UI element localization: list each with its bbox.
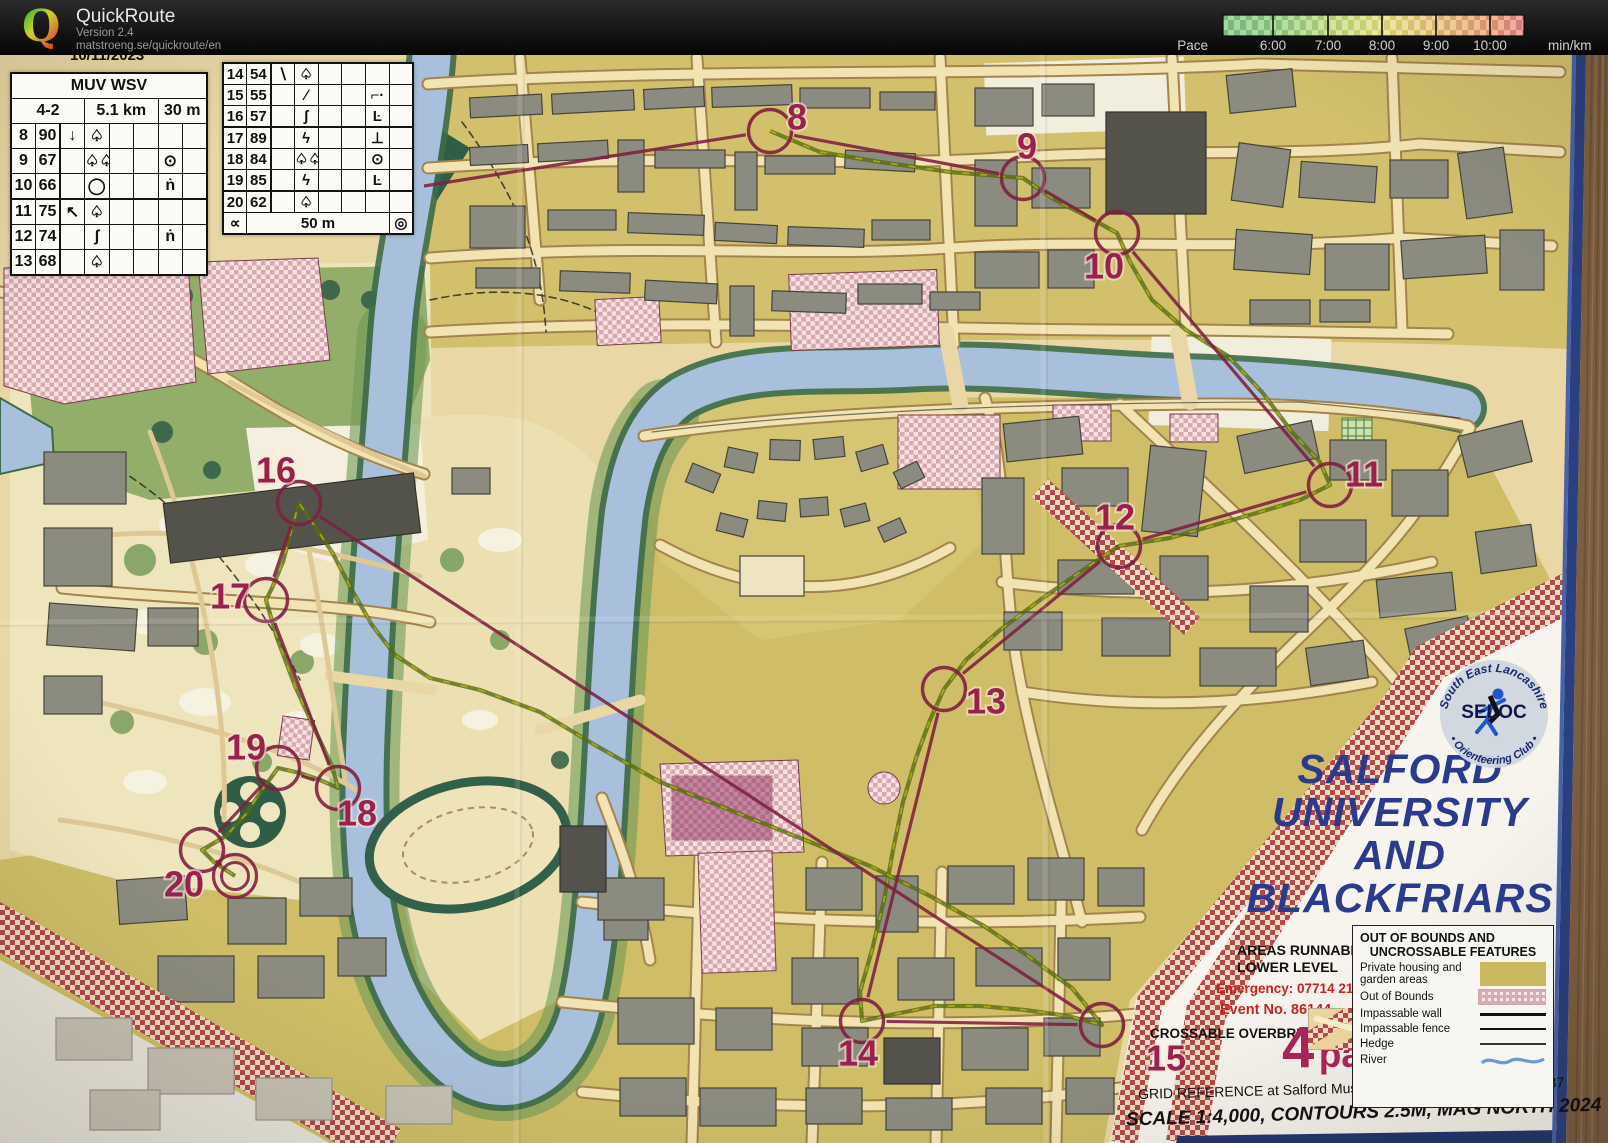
- oob-legend: OUT OF BOUNDS AND UNCROSSABLE FEATURES P…: [1352, 925, 1554, 1108]
- description-symbol: [318, 127, 342, 149]
- control-number-12: 12: [1095, 497, 1135, 538]
- description-symbol: [183, 199, 208, 225]
- description-symbol: [271, 85, 295, 106]
- control-no: 15: [223, 85, 247, 106]
- description-symbol: [342, 106, 366, 128]
- description-symbol: [271, 106, 295, 128]
- description-symbol: ṅ: [158, 225, 183, 250]
- description-symbol: [389, 85, 413, 106]
- description-symbol: ϟ: [294, 170, 318, 192]
- description-symbol: [60, 225, 85, 250]
- description-symbol: ⊙: [158, 149, 183, 174]
- legend-item: Hedge: [1360, 1038, 1546, 1050]
- description-symbol: ♤: [85, 124, 110, 149]
- control-code: 62: [247, 191, 271, 213]
- control-no: 18: [223, 149, 247, 170]
- control-code: 54: [247, 63, 271, 85]
- sheet-class: MUV WSV: [11, 73, 207, 99]
- description-symbol: [134, 225, 159, 250]
- control-no: 14: [223, 63, 247, 85]
- pace-tick-label: 8:00: [1369, 38, 1395, 53]
- control-description-sheet: 10/11/2023 MUV WSV 4-2 5.1 km 30 m 890↓♤…: [10, 55, 414, 269]
- pace-tick-label: 6:00: [1260, 38, 1286, 53]
- description-symbol: [134, 250, 159, 276]
- pace-legend: 6:007:008:009:0010:00 Pace min/km: [1150, 0, 1608, 55]
- description-symbol: [183, 250, 208, 276]
- pace-label: Pace: [1177, 38, 1208, 53]
- description-symbol: [389, 106, 413, 128]
- description-symbol: [134, 174, 159, 200]
- description-symbol: [158, 250, 183, 276]
- control-number-9: 9: [1017, 126, 1037, 167]
- description-symbol: [183, 225, 208, 250]
- sheet-left-table: MUV WSV 4-2 5.1 km 30 m 890↓♤967♤♤⊙1066◯…: [10, 72, 208, 276]
- title-bar: Q QuickRoute Version 2.4 matstroeng.se/q…: [0, 0, 1608, 55]
- sheet-length: 5.1 km: [85, 99, 159, 124]
- control-code: 67: [36, 149, 61, 174]
- description-symbol: [389, 127, 413, 149]
- legend-swatch-hedge: [1480, 1043, 1546, 1045]
- control-no: 16: [223, 106, 247, 128]
- control-code: 74: [36, 225, 61, 250]
- description-symbol: [271, 127, 295, 149]
- finish-funnel-icon: ∝: [223, 213, 247, 235]
- description-symbol: ♤: [294, 191, 318, 213]
- legend-swatch-oob: [1478, 989, 1546, 1005]
- control-number-18: 18: [337, 793, 377, 834]
- description-symbol: [342, 149, 366, 170]
- description-symbol: [318, 149, 342, 170]
- description-symbol: [271, 191, 295, 213]
- description-symbol: [158, 124, 183, 149]
- description-symbol: ∖: [271, 63, 295, 85]
- control-number-15: 15: [1146, 1038, 1186, 1079]
- description-symbol: [389, 149, 413, 170]
- control-code: 90: [36, 124, 61, 149]
- control-code: 89: [247, 127, 271, 149]
- description-symbol: [183, 124, 208, 149]
- control-code: 68: [36, 250, 61, 276]
- description-symbol: [342, 127, 366, 149]
- description-symbol: ʃ: [294, 106, 318, 128]
- description-symbol: [60, 250, 85, 276]
- control-no: 13: [11, 250, 36, 276]
- quickroute-window: { "header": { "logo_letter": "Q", "app_n…: [0, 0, 1608, 1143]
- description-symbol: ♤: [294, 63, 318, 85]
- description-symbol: [389, 170, 413, 192]
- description-symbol: [318, 170, 342, 192]
- description-symbol: ⊙: [366, 149, 390, 170]
- description-symbol: [60, 174, 85, 200]
- description-symbol: [109, 149, 134, 174]
- description-symbol: [109, 174, 134, 200]
- control-no: 8: [11, 124, 36, 149]
- description-symbol: ∕: [294, 85, 318, 106]
- pace-tick-label: 9:00: [1423, 38, 1449, 53]
- sheet-right-table: 1454∖♤1555∕⌐·1657ʃĿ1789ϟ⊥1884♤♤⊙1985ϟĿ20…: [222, 62, 414, 235]
- sheet-final-leg: 50 m: [247, 213, 390, 235]
- pace-tick-label: 10:00: [1473, 38, 1507, 53]
- description-symbol: ♤: [85, 250, 110, 276]
- description-symbol: [134, 124, 159, 149]
- description-symbol: ◯: [85, 174, 110, 200]
- description-symbol: [342, 85, 366, 106]
- control-no: 19: [223, 170, 247, 192]
- app-title: QuickRoute: [76, 6, 175, 28]
- sheet-climb: 30 m: [158, 99, 207, 124]
- description-symbol: [183, 174, 208, 200]
- description-symbol: [318, 85, 342, 106]
- control-no: 11: [11, 199, 36, 225]
- control-number-8: 8: [787, 97, 807, 138]
- description-symbol: [389, 191, 413, 213]
- legend-item: Private housing and garden areas: [1360, 962, 1546, 986]
- description-symbol: [318, 191, 342, 213]
- description-symbol: ⌐·: [366, 85, 390, 106]
- control-no: 17: [223, 127, 247, 149]
- pace-tick-label: 7:00: [1315, 38, 1341, 53]
- description-symbol: [389, 63, 413, 85]
- svg-text:SELOC: SELOC: [1461, 702, 1527, 723]
- description-symbol: ♤♤: [294, 149, 318, 170]
- description-symbol: [109, 250, 134, 276]
- control-number-19: 19: [226, 727, 266, 768]
- control-no: 10: [11, 174, 36, 200]
- description-symbol: [134, 149, 159, 174]
- legend-swatch-wall: [1480, 1013, 1546, 1016]
- control-no: 12: [11, 225, 36, 250]
- control-number-16: 16: [256, 450, 296, 491]
- description-symbol: ϟ: [294, 127, 318, 149]
- description-symbol: [158, 199, 183, 225]
- control-no: 20: [223, 191, 247, 213]
- control-no: 9: [11, 149, 36, 174]
- description-symbol: [134, 199, 159, 225]
- quickroute-logo-icon: Q: [22, 2, 60, 52]
- control-code: 75: [36, 199, 61, 225]
- finish-circle-icon: ◎: [389, 213, 413, 235]
- control-code: 57: [247, 106, 271, 128]
- legend-item: Out of Bounds: [1360, 989, 1546, 1005]
- app-url: matstroeng.se/quickroute/en: [76, 40, 221, 52]
- legend-swatch-river: [1480, 1053, 1546, 1067]
- legend-swatch-fence: [1480, 1028, 1546, 1030]
- description-symbol: [271, 170, 295, 192]
- description-symbol: ♤: [85, 199, 110, 225]
- description-symbol: [318, 63, 342, 85]
- control-number-14: 14: [838, 1033, 878, 1074]
- description-symbol: [366, 191, 390, 213]
- control-number-10: 10: [1084, 246, 1124, 287]
- description-symbol: [109, 225, 134, 250]
- description-symbol: [109, 124, 134, 149]
- legend-item: River: [1360, 1053, 1546, 1067]
- control-number-13: 13: [966, 681, 1006, 722]
- description-symbol: [342, 63, 366, 85]
- description-symbol: [60, 149, 85, 174]
- control-code: 66: [36, 174, 61, 200]
- app-version: Version 2.4: [76, 27, 134, 39]
- control-number-20: 20: [164, 864, 204, 905]
- description-symbol: [109, 199, 134, 225]
- description-symbol: ʃ: [85, 225, 110, 250]
- control-number-11: 11: [1345, 454, 1383, 495]
- description-symbol: [183, 149, 208, 174]
- description-symbol: [342, 191, 366, 213]
- description-symbol: ↖: [60, 199, 85, 225]
- control-number-17: 17: [210, 576, 250, 617]
- legend-item: Impassable wall: [1360, 1008, 1546, 1020]
- description-symbol: [342, 170, 366, 192]
- seloc-club-logo: South East Lancashire • Orienteering Clu…: [1432, 652, 1556, 781]
- description-symbol: ↓: [60, 124, 85, 149]
- description-symbol: [366, 63, 390, 85]
- legend-swatch-olive: [1480, 962, 1546, 986]
- description-symbol: [271, 149, 295, 170]
- control-code: 55: [247, 85, 271, 106]
- description-symbol: Ŀ: [366, 106, 390, 128]
- control-code: 84: [247, 149, 271, 170]
- control-code: 85: [247, 170, 271, 192]
- legend-item: Impassable fence: [1360, 1023, 1546, 1035]
- sheet-course: 4-2: [11, 99, 85, 124]
- description-symbol: Ŀ: [366, 170, 390, 192]
- pace-unit-label: min/km: [1548, 38, 1592, 53]
- description-symbol: ⊥: [366, 127, 390, 149]
- description-symbol: ♤♤: [85, 149, 110, 174]
- description-symbol: [318, 106, 342, 128]
- description-symbol: ṅ: [158, 174, 183, 200]
